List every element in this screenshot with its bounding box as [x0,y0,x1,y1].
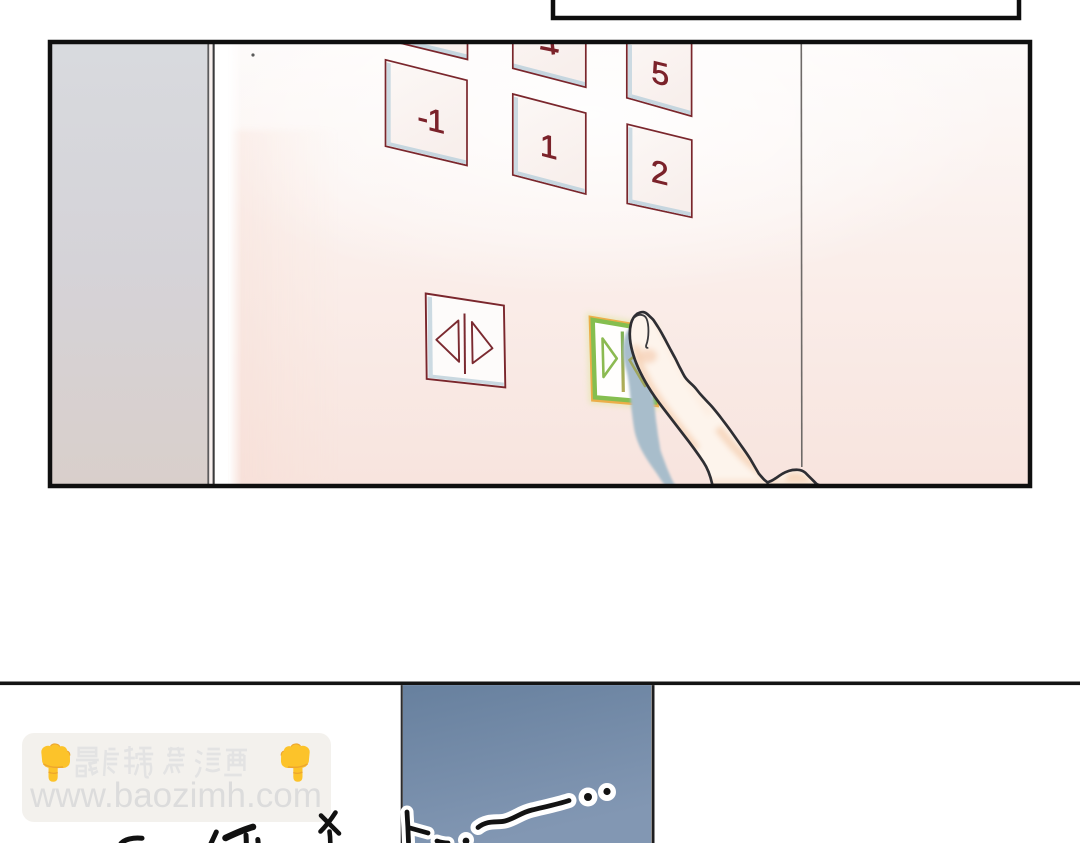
svg-text:2: 2 [651,153,668,193]
svg-text:5: 5 [651,54,668,94]
svg-text:1: 1 [540,127,557,167]
svg-text:www.baozimh.com: www.baozimh.com [29,776,322,815]
svg-text:-1: -1 [417,98,444,140]
